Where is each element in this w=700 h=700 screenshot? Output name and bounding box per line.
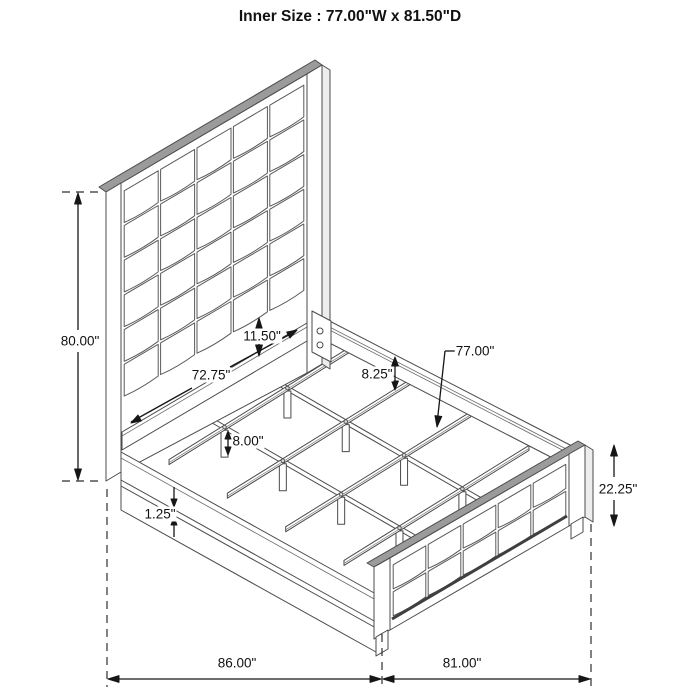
dim-headboard-inner-width-label: 72.75": [191, 368, 232, 383]
dim-footboard-height-label: 22.25": [598, 482, 639, 497]
dim-headboard-lower-label: 11.50": [242, 329, 282, 344]
dim-slat-length-label: 77.00": [455, 344, 496, 359]
far-side-rail: [316, 314, 572, 468]
diagram-canvas: Inner Size : 77.00"W x 81.50"D 80.00" 11…: [0, 0, 700, 700]
dim-overall-height-label: 80.00": [60, 334, 101, 349]
dim-rail-above-slat-label: 8.25": [360, 367, 393, 382]
dim-overall-width-label: 81.00": [442, 656, 483, 671]
dim-rail-trim-label: 1.25": [143, 507, 176, 522]
bed-line-drawing: [0, 0, 700, 700]
dim-overall-depth-label: 86.00": [217, 656, 258, 671]
headboard: [99, 60, 330, 481]
dim-leg-height-label: 8.00": [231, 434, 264, 449]
inner-size-title: Inner Size : 77.00"W x 81.50"D: [239, 8, 461, 26]
